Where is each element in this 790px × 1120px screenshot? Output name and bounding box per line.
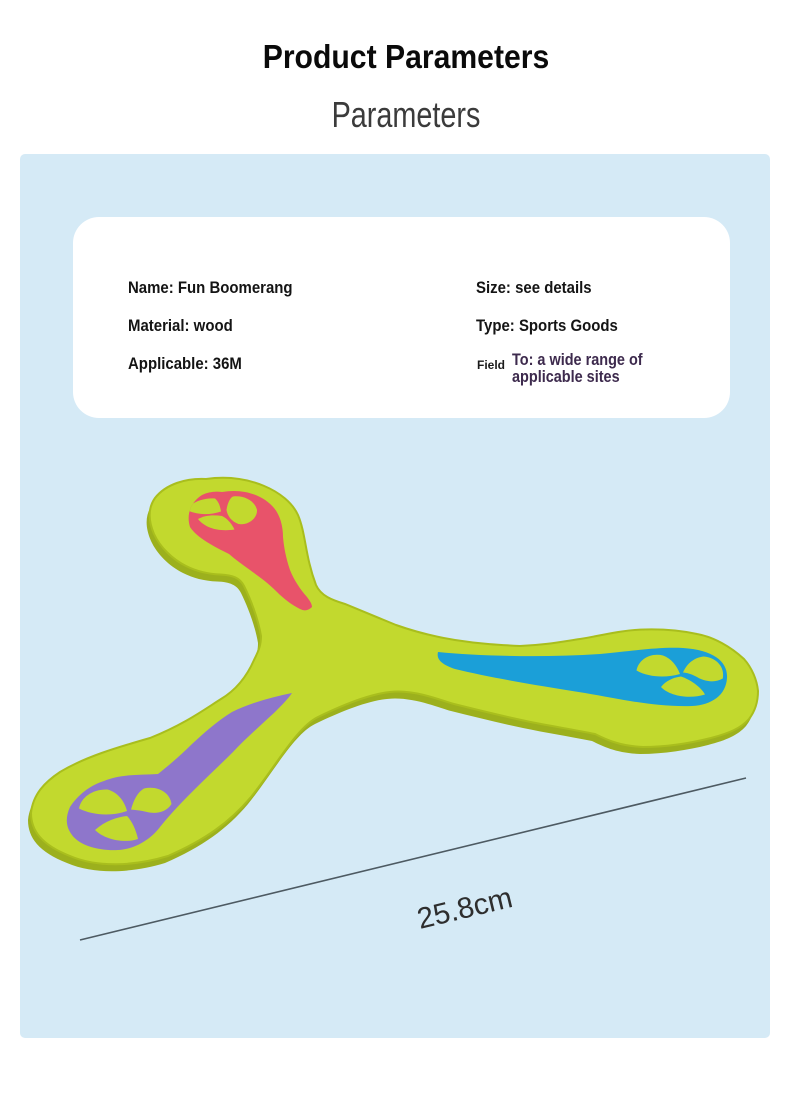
svg-text:25.8cm: 25.8cm: [414, 881, 516, 936]
